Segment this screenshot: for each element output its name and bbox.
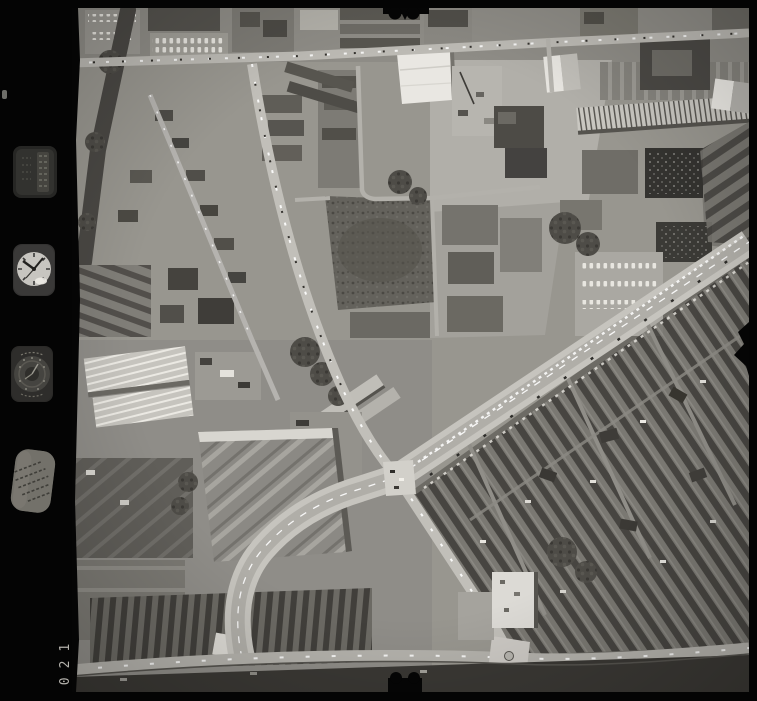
survey-stamp-icon [9,448,56,514]
altimeter-icon [11,346,53,402]
clock-instrument-frame [13,244,55,296]
film-scratch [2,90,7,99]
altimeter-instrument-frame [11,346,53,402]
film-scan: 021 [0,0,757,701]
clock-icon [13,244,55,296]
data-plate-icon [13,146,57,198]
aerial-photograph [72,8,749,692]
vignette [72,8,749,692]
data-plate-frame [13,146,57,198]
survey-stamp-frame [9,448,56,514]
frame-number-label: 021 [58,630,74,690]
